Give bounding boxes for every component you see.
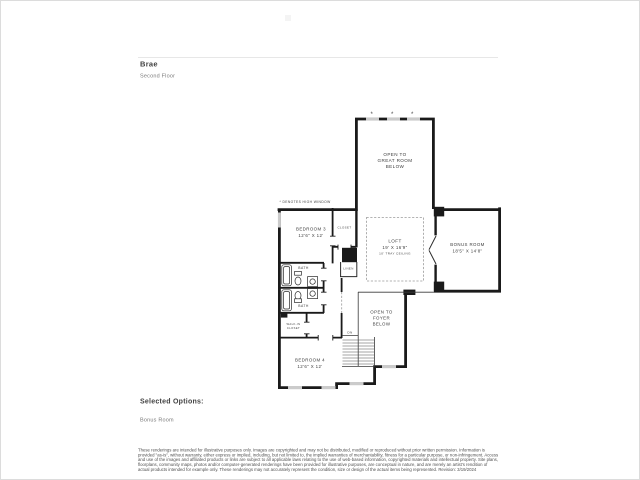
great-room-label: OPEN TO — [383, 152, 406, 157]
high-window-markers: * * * — [371, 112, 415, 118]
svg-text:BELOW: BELOW — [386, 164, 405, 169]
svg-text:*: * — [391, 112, 394, 118]
legal-disclaimer: These renderings are intended for illust… — [138, 448, 499, 472]
floorplan-page: { "page": { "title": "Brae", "subtitle":… — [0, 0, 640, 480]
bedroom4-dims: 12'6" X 12' — [297, 364, 322, 369]
bedroom4-label: BEDROOM 4 — [295, 358, 325, 363]
svg-text:*: * — [411, 112, 414, 118]
svg-text:*: * — [371, 112, 374, 118]
closet-label: CLOSET — [338, 226, 352, 230]
toilet-upper-bowl — [295, 277, 301, 285]
svg-text:BELOW: BELOW — [373, 322, 391, 327]
floor-opening-edges — [358, 292, 434, 337]
loft-label: LOFT — [388, 239, 401, 244]
tray-ceiling-outline — [342, 218, 424, 314]
walkin-closet-label: WALK-IN — [287, 322, 301, 326]
foyer-label: OPEN TO — [370, 310, 393, 315]
room-labels: * DENOTES HIGH WINDOW OPEN TO GREAT ROOM… — [280, 152, 485, 369]
bath-lower-label: BATH — [298, 304, 309, 308]
bonus-room-label: BONUS ROOM — [450, 242, 485, 247]
toilet-lower-bowl — [295, 292, 301, 300]
stairs-dn-label: DN — [347, 331, 352, 335]
loft-ceiling-note: 10' TRAY CEILING — [379, 252, 411, 256]
bonus-room-dims: 18'5" X 14'8" — [452, 249, 482, 254]
selected-options-heading: Selected Options: — [140, 397, 204, 405]
loft-dims: 19' X 16'9" — [382, 245, 407, 250]
bedroom3-label: BEDROOM 3 — [296, 227, 326, 232]
svg-text:GREAT ROOM: GREAT ROOM — [378, 158, 413, 163]
toilet-upper-tank — [295, 271, 302, 275]
staircase — [342, 336, 374, 367]
svg-text:FOYER: FOYER — [373, 316, 390, 321]
bonus-room-double-door — [429, 236, 436, 264]
bedroom3-dims: 12'6" X 12' — [298, 233, 323, 238]
toilet-lower-tank — [295, 299, 302, 303]
svg-text:CLOSET: CLOSET — [287, 326, 300, 330]
bath-upper-label: BATH — [298, 266, 309, 270]
floorplan-drawing: * * * * DENOTES HIGH WINDOW OPEN TO GREA… — [0, 0, 640, 480]
selected-option-item: Bonus Room — [140, 417, 174, 423]
linen-label: LINEN — [343, 267, 354, 271]
high-window-note: * DENOTES HIGH WINDOW — [280, 200, 332, 204]
